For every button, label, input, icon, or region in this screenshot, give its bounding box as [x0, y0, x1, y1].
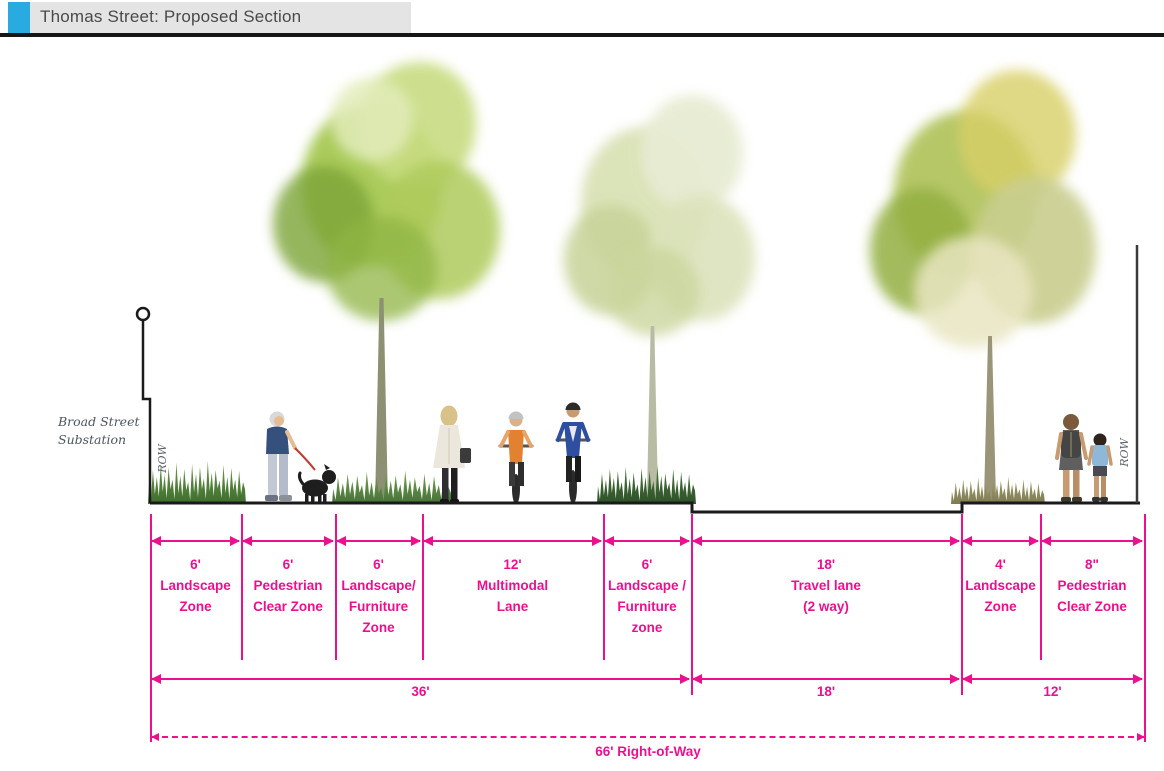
foliage-blob [607, 247, 700, 336]
zone-label: 12' Multimodal Lane [422, 554, 603, 617]
zone-size: 6' [603, 554, 691, 575]
foliage-blob [641, 95, 743, 210]
dimension-arrow [963, 540, 1038, 542]
child [1086, 432, 1116, 505]
foliage-blob [914, 236, 1032, 348]
zone-column: 6' Landscape / Furniture zone [603, 516, 691, 676]
total-dimension-label: 66' Right-of-Way [150, 744, 1146, 759]
zone-size: 18' [691, 554, 961, 575]
zone-label: 18' Travel lane (2 way) [691, 554, 961, 617]
zone-name-line: Lane [422, 596, 603, 617]
zone-label: 6' Landscape / Furniture zone [603, 554, 691, 638]
side-note-line1: Broad Street [58, 413, 140, 431]
zone-name-line: Zone [150, 596, 241, 617]
row-label-left: ROW [156, 444, 169, 473]
zone-column: 6' Landscape/ Furniture Zone [335, 516, 422, 676]
zone-column: 8" Pedestrian Clear Zone [1040, 516, 1144, 676]
zone-name-line: Pedestrian [241, 575, 335, 596]
zone-size: 12' [422, 554, 603, 575]
zone-column: 18' Travel lane (2 way) [691, 516, 961, 676]
zone-label: 6' Landscape/ Furniture Zone [335, 554, 422, 638]
zone-name-line: Furniture [335, 596, 422, 617]
group-label: 36' [150, 684, 691, 699]
woman-walking [424, 404, 474, 505]
zone-label: 8" Pedestrian Clear Zone [1040, 554, 1144, 617]
zone-label: 6' Pedestrian Clear Zone [241, 554, 335, 617]
side-note-line2: Substation [58, 431, 140, 449]
zone-name-line: zone [603, 617, 691, 638]
dimension-arrow [693, 540, 959, 542]
zone-name-line: Landscape / [603, 575, 691, 596]
zone-size: 6' [335, 554, 422, 575]
dog [296, 460, 340, 505]
header-rule [0, 33, 1164, 37]
zone-size: 6' [150, 554, 241, 575]
zone-name-line: Pedestrian [1040, 575, 1144, 596]
zone-name-line: Zone [961, 596, 1040, 617]
dimension-group: 12' [961, 666, 1144, 708]
page-title: Thomas Street: Proposed Section [40, 7, 301, 27]
dimension-group: 18' [691, 666, 961, 708]
tree-middle [556, 90, 768, 352]
foliage-blob [331, 78, 413, 161]
zone-name-line: Travel lane [691, 575, 961, 596]
dimension-arrow [1042, 540, 1142, 542]
street-section-page: Thomas Street: Proposed Section [0, 0, 1164, 771]
dimension-arrow [152, 540, 239, 542]
dimension-arrow [424, 540, 601, 542]
zone-size: 6' [241, 554, 335, 575]
dimension-group: 36' [150, 666, 691, 708]
zone-column: 6' Landscape Zone [150, 516, 241, 676]
zone-name-line: Clear Zone [241, 596, 335, 617]
cyclist-blue [544, 398, 602, 506]
zone-label: 6' Landscape Zone [150, 554, 241, 617]
zone-name-line: Zone [335, 617, 422, 638]
group-label: 18' [691, 684, 961, 699]
dimension-arrow [337, 540, 420, 542]
total-dimension: 66' Right-of-Way [150, 730, 1146, 768]
zone-size: 8" [1040, 554, 1144, 575]
dimension-arrow [963, 678, 1142, 680]
dimension-arrow [243, 540, 333, 542]
row-label-right: ROW [1118, 438, 1131, 467]
total-dimension-dashed-arrow [152, 736, 1144, 738]
zone-name-line: Multimodal [422, 575, 603, 596]
zone-name-line: Landscape/ [335, 575, 422, 596]
zone-boundary-line [1144, 514, 1146, 742]
dimension-arrow [605, 540, 689, 542]
tree-right [860, 64, 1106, 360]
zone-column: 6' Pedestrian Clear Zone [241, 516, 335, 676]
zone-label: 4' Landscape Zone [961, 554, 1040, 617]
zone-name-line: (2 way) [691, 596, 961, 617]
zone-column: 4' Landscape Zone [961, 516, 1040, 676]
zone-name-line: Landscape [150, 575, 241, 596]
pole-top-circle [137, 308, 149, 320]
zone-name-line: Furniture [603, 596, 691, 617]
tree-right-trunk [982, 336, 998, 503]
side-note: Broad Street Substation [58, 413, 140, 449]
group-label: 12' [961, 684, 1144, 699]
tree-left [268, 56, 510, 332]
dimension-arrow [152, 678, 689, 680]
shrub-right [951, 473, 1045, 504]
grass-tuft-middle [597, 460, 696, 504]
zone-size: 4' [961, 554, 1040, 575]
zone-name-line: Clear Zone [1040, 596, 1144, 617]
dimension-arrow [693, 678, 959, 680]
zone-column: 12' Multimodal Lane [422, 516, 603, 676]
cyclist-orange [488, 406, 544, 506]
zone-name-line: Landscape [961, 575, 1040, 596]
left-wall-line [143, 320, 150, 503]
header-accent-square [8, 2, 30, 33]
